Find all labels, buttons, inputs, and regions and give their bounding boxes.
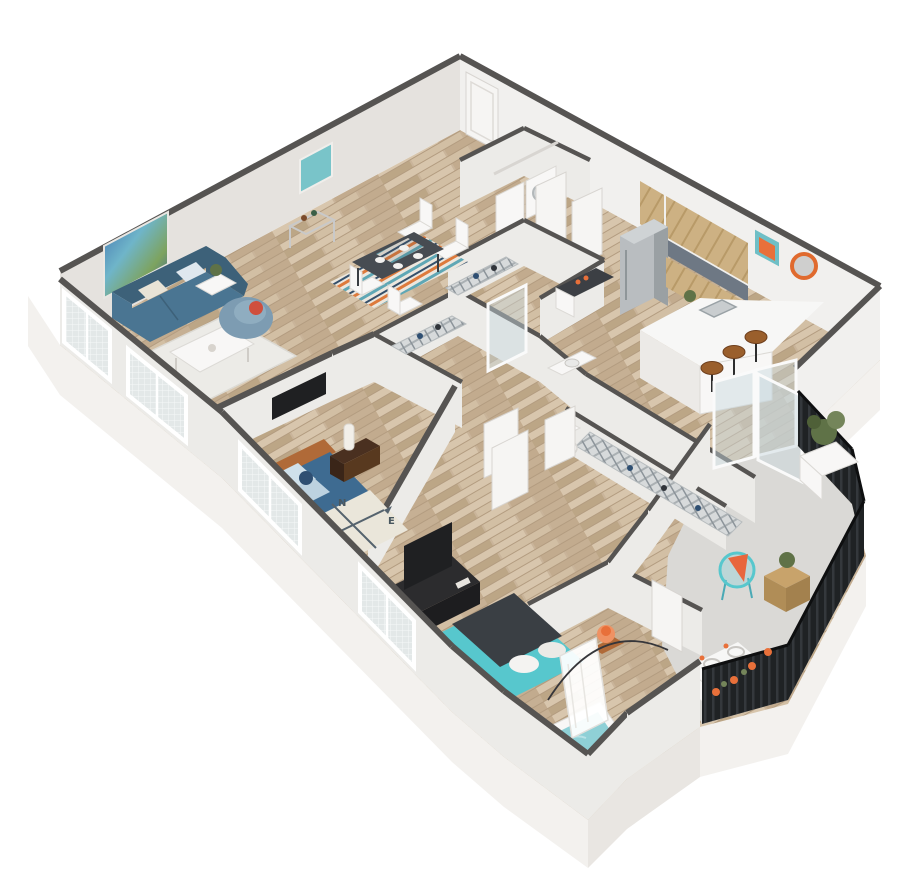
bed1-accent-pillow xyxy=(299,471,313,485)
bed2-pillow xyxy=(509,655,539,673)
armchair xyxy=(219,297,273,339)
compass-e: E xyxy=(388,516,395,527)
floor-plan-3d: N E S W xyxy=(0,0,900,896)
round-orange-mirror xyxy=(792,254,816,278)
armchair-pillow xyxy=(249,301,263,315)
table-plant xyxy=(779,552,795,568)
compass-n: N xyxy=(338,498,346,509)
refrigerator xyxy=(620,219,668,315)
bed1-lamp xyxy=(344,424,354,450)
floor-plan-stage: N E S W xyxy=(0,0,900,896)
counter-plant xyxy=(684,290,696,302)
